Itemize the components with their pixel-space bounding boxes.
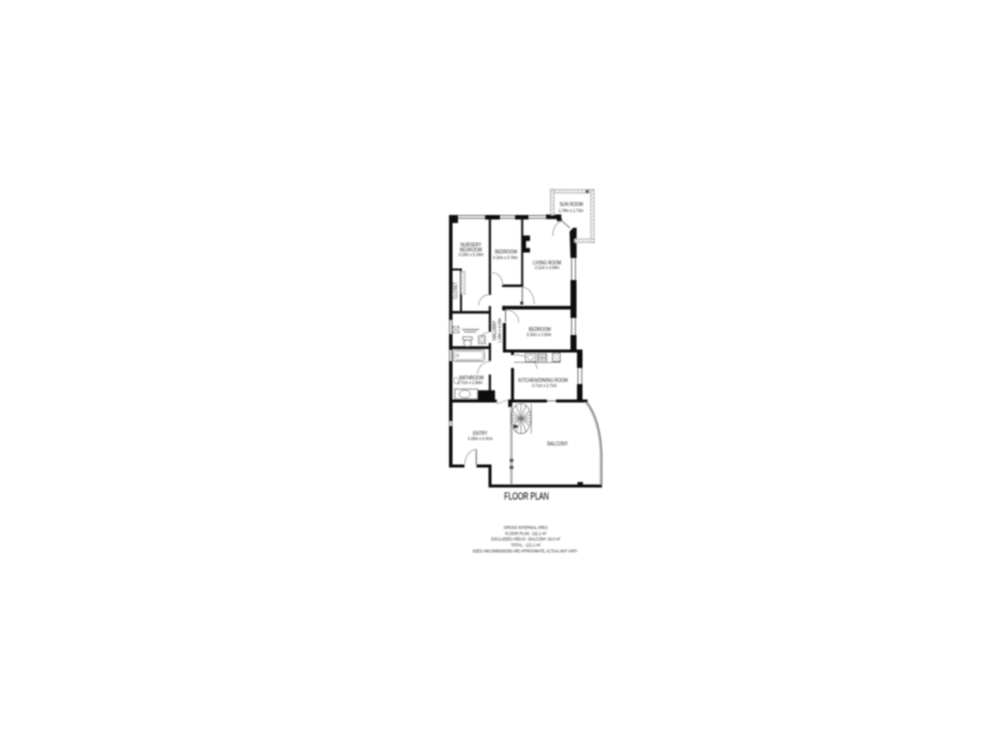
svg-text:SIZES AND DIMENSIONS ARE APPRO: SIZES AND DIMENSIONS ARE APPROXIMATE, AC… [473,549,578,553]
svg-text:1.78m x 1.73m: 1.78m x 1.73m [558,208,583,213]
svg-text:2.71m x 2.96m: 2.71m x 2.96m [458,380,483,385]
svg-text:3.11m x 4.58m: 3.11m x 4.58m [535,265,560,270]
svg-text:FLOOR PLAN: FLOOR PLAN [504,490,549,502]
svg-text:BALCONY: BALCONY [547,441,568,448]
svg-text:TOTAL : 121.1 m²: TOTAL : 121.1 m² [511,542,541,547]
svg-text:4.29m x 4.41m: 4.29m x 4.41m [468,436,493,441]
svg-text:1.29m x 4.03m: 1.29m x 4.03m [497,318,502,343]
svg-text:GROSS INTERNAL AREA: GROSS INTERNAL AREA [504,525,548,530]
svg-text:3.15m x 3.79m: 3.15m x 3.79m [493,255,518,260]
svg-text:3.15m x 5.29m: 3.15m x 5.29m [458,252,483,257]
svg-text:FLOOR PLAN : 111.1 m²: FLOOR PLAN : 111.1 m² [505,530,547,535]
svg-text:CLOSET: CLOSET [453,282,460,299]
svg-text:EXCLUDED AREAS : BALCONY 19.0: EXCLUDED AREAS : BALCONY 19.0 m² [491,536,560,541]
svg-text:4.71m x 2.72m: 4.71m x 2.72m [532,383,557,388]
svg-text:3.32m x 2.92m: 3.32m x 2.92m [527,332,552,337]
